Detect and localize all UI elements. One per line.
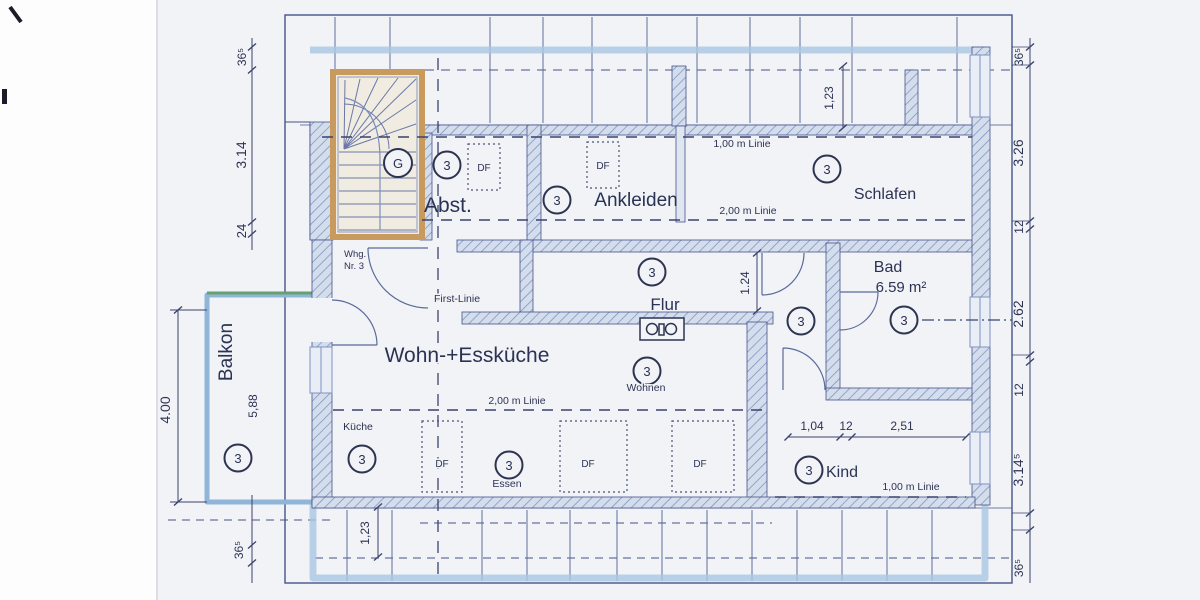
dim-balkon-length: 5,88 xyxy=(246,394,260,418)
dim-kind-3: 2,51 xyxy=(890,419,914,433)
dim-kind-1: 1,04 xyxy=(800,419,824,433)
two-m-line-bottom-label: 2,00 m Linie xyxy=(488,395,545,407)
marker-number: 3 xyxy=(443,158,450,173)
room-marker: 3 xyxy=(496,452,523,479)
room-marker: 3 xyxy=(891,307,918,334)
scan-artifact xyxy=(10,7,21,22)
dim-left-top: 36⁵ xyxy=(235,48,249,66)
marker-number: 3 xyxy=(648,265,655,280)
dim-dormer-top: 1,23 xyxy=(822,86,836,110)
room-label-abst: Abst. xyxy=(424,194,472,217)
df-label: DF xyxy=(435,459,448,470)
unit-label-line1: Whg. xyxy=(344,249,366,260)
dim-right-bad: 2.62 xyxy=(1010,300,1026,327)
chimney xyxy=(672,66,686,126)
dim-flur-width: 1.24 xyxy=(738,271,752,295)
room-label-wohnen: Wohnen xyxy=(627,382,666,394)
df-label: DF xyxy=(693,459,706,470)
wall-segment xyxy=(905,70,918,125)
marker-number: 3 xyxy=(805,463,812,478)
room-label-balkon: Balkon xyxy=(216,323,237,381)
marker-number: 3 xyxy=(505,458,512,473)
stove-symbol xyxy=(640,318,684,340)
room-marker: 3 xyxy=(544,187,571,214)
dim-left-small: 24 xyxy=(234,224,249,238)
room-label-kind: Kind xyxy=(826,464,858,481)
wall-segment xyxy=(457,240,975,252)
dim-kind-2: 12 xyxy=(839,419,853,433)
wall-segment xyxy=(422,125,975,135)
df-label: DF xyxy=(477,163,490,174)
room-label-bad: Bad xyxy=(874,259,902,276)
room-label-essen: Essen xyxy=(492,478,521,490)
wall-segment xyxy=(310,122,333,240)
dim-right-kind: 3.14⁵ xyxy=(1010,453,1026,486)
two-m-line-top-label: 2,00 m Linie xyxy=(719,205,776,217)
room-marker: 3 xyxy=(639,259,666,286)
room-marker: 3 xyxy=(434,152,461,179)
room-label-schlafen: Schlafen xyxy=(854,186,916,203)
room-area-bad: 6.59 m² xyxy=(876,279,927,296)
room-label-kueche: Küche xyxy=(343,421,373,433)
marker-number: 3 xyxy=(553,193,560,208)
room-marker: 3 xyxy=(814,156,841,183)
marker-number: 3 xyxy=(797,314,804,329)
room-marker: 3 xyxy=(796,457,823,484)
marker-number: 3 xyxy=(900,313,907,328)
room-marker: 3 xyxy=(788,308,815,335)
marker-number: 3 xyxy=(643,364,650,379)
floor-plan-scan: DF DF DF DF DF 3 3 3 3 3 3 xyxy=(0,0,1200,600)
dim-dormer-bottom: 1,23 xyxy=(358,521,372,545)
floor-plan-drawing: DF DF DF DF DF 3 3 3 3 3 3 xyxy=(0,0,1200,600)
dim-right-wall2: 12 xyxy=(1012,383,1026,397)
dim-right-schlafen: 3.26 xyxy=(1010,139,1026,166)
balcony-door-opening xyxy=(311,298,333,342)
marker-letter: G xyxy=(393,156,403,171)
room-label-ankleiden: Ankleiden xyxy=(594,190,677,211)
df-label: DF xyxy=(581,459,594,470)
room-marker: 3 xyxy=(634,358,661,385)
unit-label-line2: Nr. 3 xyxy=(344,261,364,272)
wall-segment xyxy=(312,497,975,508)
marker-number: 3 xyxy=(823,162,830,177)
scan-artifact xyxy=(2,89,7,104)
room-label-flur: Flur xyxy=(650,295,680,314)
room-marker: 3 xyxy=(349,446,376,473)
df-label: DF xyxy=(596,161,609,172)
stove-center xyxy=(659,324,664,335)
dim-right-wall1: 12 xyxy=(1012,220,1026,234)
wall-segment xyxy=(826,243,840,390)
room-label-wohn-esskueche: Wohn-+Essküche xyxy=(385,344,550,367)
marker-number: 3 xyxy=(234,451,241,466)
wall-segment xyxy=(747,322,767,505)
stove-burner xyxy=(666,324,677,335)
wall-segment xyxy=(520,240,533,324)
stair-marker: G xyxy=(384,149,412,177)
stove-burner xyxy=(647,324,658,335)
one-m-line-top-label: 1,00 m Linie xyxy=(713,138,770,150)
dim-right-top: 36⁵ xyxy=(1012,48,1026,66)
dim-right-bottom: 36⁵ xyxy=(1012,559,1026,577)
wall-segment xyxy=(826,388,975,400)
dim-balkon-depth: 4.00 xyxy=(157,396,173,423)
wall-segment xyxy=(462,312,773,324)
one-m-line-bottom-label: 1,00 m Linie xyxy=(882,481,939,493)
dim-left-height: 3.14 xyxy=(233,141,249,168)
wall-segment xyxy=(527,125,541,240)
room-marker: 3 xyxy=(225,445,252,472)
ridge-line-label: First-Linie xyxy=(434,293,480,305)
marker-number: 3 xyxy=(358,452,365,467)
dim-left-bottom: 36⁵ xyxy=(232,541,246,559)
